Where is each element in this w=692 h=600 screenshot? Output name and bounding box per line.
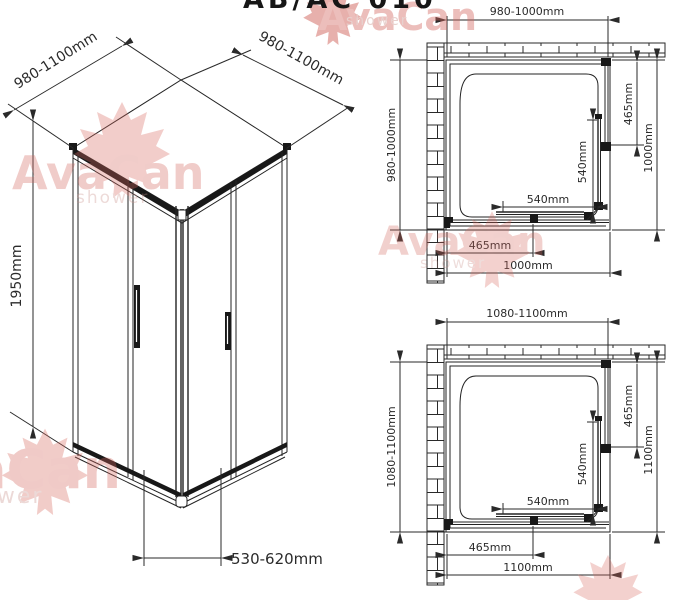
door-handle-right (225, 312, 231, 350)
plan1-dim-top-label: 980-1000mm (490, 5, 564, 18)
plan1-dim-right-outer-label: 1000mm (642, 123, 655, 172)
page-title: AB/AC 010 (243, 0, 437, 15)
plan2-dim-bottom-inner-label: 465mm (469, 541, 511, 554)
watermark-middle: AvaCan shower (378, 211, 545, 288)
iso-top-corner-cap (178, 210, 186, 220)
iso-door-stiles (176, 206, 188, 500)
plan-drawing (390, 318, 665, 585)
iso-dim-entry-width-label: 530-620mm (231, 550, 323, 568)
plan2-dim-left-label: 1080-1100mm (385, 406, 398, 487)
plan2-dim-right-outer-label: 1100mm (642, 425, 655, 474)
plan1-dim-inner-horizontal-label: 540mm (527, 193, 569, 206)
drawing-canvas: 980-1100mm 980-1100mm 1950mm 530-620mm 9… (0, 0, 692, 600)
iso-dim-width-left-label: 980-1100mm (11, 29, 100, 93)
iso-dim-height-label: 1950mm (9, 245, 25, 308)
watermark-sub-text: shower (346, 13, 409, 29)
watermark-sub-text: shower (0, 484, 43, 509)
plan-view-bottom: 1080-1100mm 1080-1100mm 465mm 1100mm 540… (385, 307, 665, 585)
watermark-bottom-left: AvaCan shower (0, 429, 121, 515)
maple-leaf-icon (573, 555, 642, 600)
plan2-dim-inner-vertical-label: 540mm (576, 443, 589, 485)
watermark-sub-text: shower (420, 254, 486, 272)
plan1-dim-right-inner-label: 465mm (622, 83, 635, 125)
door-handle-left (134, 285, 140, 348)
iso-base-corner-cap (176, 496, 187, 507)
watermark-sub-text: shower (76, 188, 149, 208)
plan1-dim-inner-vertical-label: 540mm (576, 141, 589, 183)
plan2-dim-inner-horizontal-label: 540mm (527, 495, 569, 508)
plan2-dim-top-label: 1080-1100mm (486, 307, 567, 320)
plan2-dim-bottom-outer-label: 1100mm (503, 561, 552, 574)
plan1-dim-left-label: 980-1000mm (385, 108, 398, 182)
watermark-bottom-right (573, 555, 642, 600)
plan2-dim-right-inner-label: 465mm (622, 385, 635, 427)
